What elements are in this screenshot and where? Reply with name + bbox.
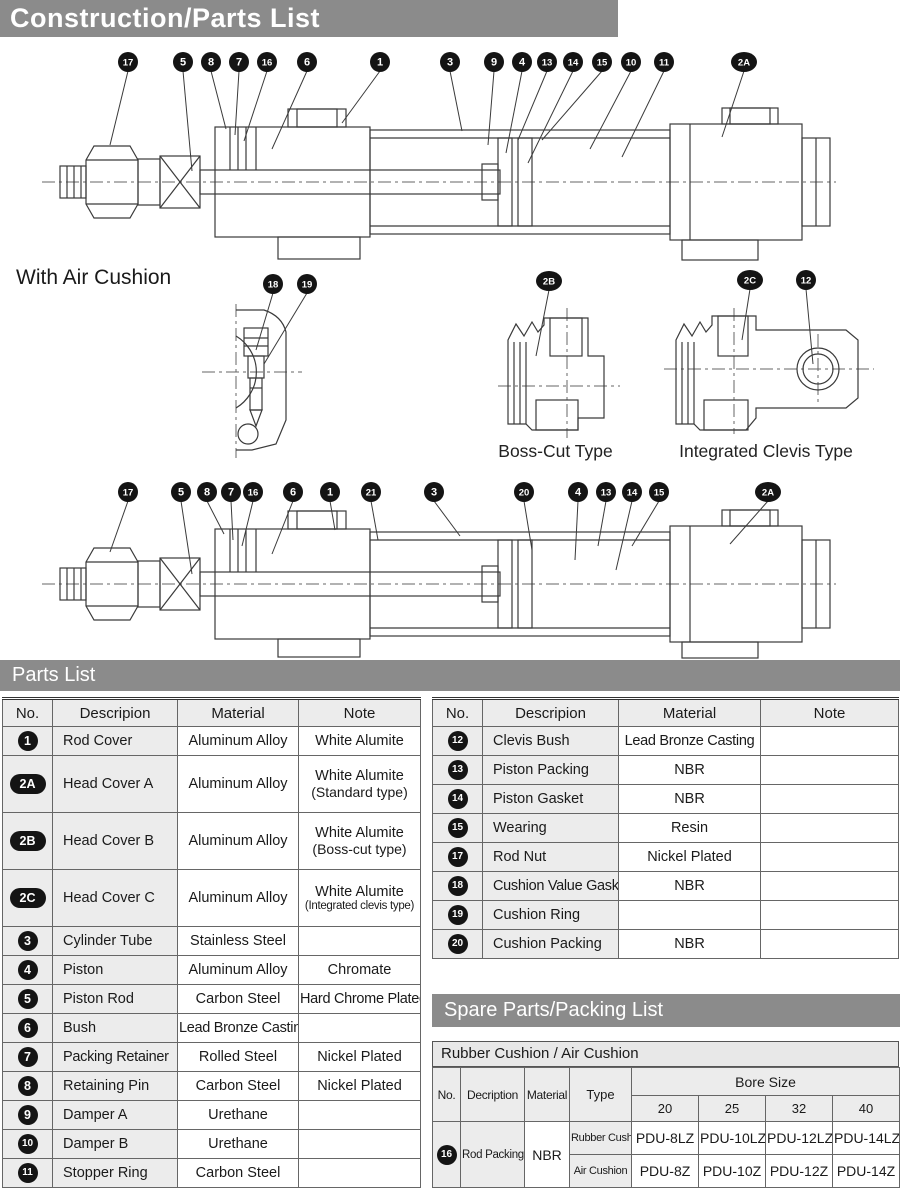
- parts-row: 14Piston GasketNBR: [433, 785, 899, 814]
- note-cell: [761, 727, 899, 756]
- callout-badge-8: 8: [201, 52, 221, 72]
- part-number-badge: 14: [448, 789, 468, 809]
- svg-text:1: 1: [377, 57, 383, 69]
- column-header: Material: [178, 699, 299, 727]
- column-header: Decription: [461, 1068, 525, 1122]
- part-code-cell: PDU-12Z: [766, 1155, 833, 1188]
- callout-badge-3: 3: [424, 482, 444, 502]
- description-cell: Piston: [53, 956, 178, 985]
- material-cell: Nickel Plated: [619, 843, 761, 872]
- callout-badge-15: 15: [592, 52, 612, 72]
- parts-list-table-left: No.DescripionMaterialNote1Rod CoverAlumi…: [2, 697, 421, 1188]
- part-no-cell: 20: [433, 930, 483, 959]
- part-no-cell: 2A: [3, 756, 53, 813]
- callout-badge-2C: 2C: [737, 270, 763, 290]
- description-cell: Piston Packing: [483, 756, 619, 785]
- part-number-badge: 19: [448, 905, 468, 925]
- material-cell: Aluminum Alloy: [178, 727, 299, 756]
- callout-badge-2A: 2A: [731, 52, 757, 72]
- parts-row: 1Rod CoverAluminum AlloyWhite Alumite: [3, 727, 421, 756]
- part-number-badge: 9: [18, 1105, 38, 1125]
- part-number-badge: 12: [448, 731, 468, 751]
- svg-text:12: 12: [801, 276, 812, 287]
- callout-badge-11: 11: [654, 52, 674, 72]
- description-cell: Clevis Bush: [483, 727, 619, 756]
- svg-text:17: 17: [123, 488, 134, 499]
- integrated-clevis-type-diagram: 2C12: [650, 268, 882, 440]
- callout-badge-7: 7: [221, 482, 241, 502]
- description-cell: Cushion Ring: [483, 901, 619, 930]
- part-number-badge: 17: [448, 847, 468, 867]
- svg-text:21: 21: [366, 488, 377, 499]
- svg-text:11: 11: [659, 58, 670, 69]
- parts-row: 10Damper BUrethane: [3, 1130, 421, 1159]
- note-cell: White Alumite(Boss-cut type): [299, 813, 421, 870]
- material-cell: Urethane: [178, 1101, 299, 1130]
- svg-text:20: 20: [519, 488, 530, 499]
- parts-row: 20Cushion PackingNBR: [433, 930, 899, 959]
- description-cell: Cushion Value Gasket: [483, 872, 619, 901]
- note-cell: [299, 1159, 421, 1188]
- part-no-cell: 12: [433, 727, 483, 756]
- part-no-cell: 17: [433, 843, 483, 872]
- parts-row: 2BHead Cover BAluminum AlloyWhite Alumit…: [3, 813, 421, 870]
- parts-row: 9Damper AUrethane: [3, 1101, 421, 1130]
- callout-badge-6: 6: [297, 52, 317, 72]
- parts-row: 19Cushion Ring: [433, 901, 899, 930]
- air-cushion-detail-diagram: 1819: [190, 272, 360, 460]
- with-air-cushion-label: With Air Cushion: [16, 266, 171, 290]
- callout-badge-18: 18: [263, 274, 283, 294]
- spare-parts-table: No. Decription Material Type Bore Size 2…: [432, 1067, 900, 1188]
- note-cell: [761, 872, 899, 901]
- callout-badge-20: 20: [514, 482, 534, 502]
- part-number-badge: 2B: [10, 831, 46, 851]
- parts-row: 17Rod NutNickel Plated: [433, 843, 899, 872]
- description-cell: Packing Retainer: [53, 1043, 178, 1072]
- column-header: Note: [761, 699, 899, 727]
- parts-row: 2CHead Cover CAluminum AlloyWhite Alumit…: [3, 870, 421, 927]
- svg-text:2B: 2B: [543, 277, 555, 288]
- part-no-cell: 10: [3, 1130, 53, 1159]
- svg-text:3: 3: [447, 57, 453, 69]
- svg-text:7: 7: [228, 487, 234, 499]
- callout-badge-16: 16: [243, 482, 263, 502]
- svg-text:17: 17: [123, 58, 134, 69]
- material-cell: Aluminum Alloy: [178, 813, 299, 870]
- description-cell: Head Cover C: [53, 870, 178, 927]
- header-row: No.DescripionMaterialNote: [433, 699, 899, 727]
- svg-text:5: 5: [180, 57, 186, 69]
- part-number-badge: 15: [448, 818, 468, 838]
- callout-badge-10: 10: [621, 52, 641, 72]
- parts-row: 3Cylinder TubeStainless Steel: [3, 927, 421, 956]
- note-cell: [761, 785, 899, 814]
- callout-badge-2B: 2B: [536, 271, 562, 291]
- note-cell: [299, 1014, 421, 1043]
- part-code-cell: PDU-14Z: [833, 1155, 900, 1188]
- boss-cut-type-label: Boss-Cut Type: [468, 441, 643, 462]
- material-cell: Aluminum Alloy: [178, 956, 299, 985]
- svg-text:15: 15: [654, 488, 665, 499]
- description-cell: Cushion Packing: [483, 930, 619, 959]
- svg-text:14: 14: [568, 58, 579, 69]
- part-code-cell: PDU-8Z: [632, 1155, 699, 1188]
- note-cell: [299, 1130, 421, 1159]
- description-cell: Head Cover A: [53, 756, 178, 813]
- part-code-cell: PDU-10LZ: [699, 1122, 766, 1155]
- callout-badge-6: 6: [283, 482, 303, 502]
- material-cell: Lead Bronze Casting: [178, 1014, 299, 1043]
- note-text: White Alumite: [300, 884, 419, 900]
- part-no-cell: 16: [433, 1122, 461, 1188]
- description-cell: Stopper Ring: [53, 1159, 178, 1188]
- part-no-cell: 8: [3, 1072, 53, 1101]
- parts-row: 13Piston PackingNBR: [433, 756, 899, 785]
- note-cell: [761, 814, 899, 843]
- svg-text:18: 18: [268, 280, 279, 291]
- callout-badge-1: 1: [370, 52, 390, 72]
- callout-badge-16: 16: [257, 52, 277, 72]
- callout-badge-19: 19: [297, 274, 317, 294]
- column-header: No.: [433, 699, 483, 727]
- material-cell: Carbon Steel: [178, 985, 299, 1014]
- parts-row: 18Cushion Value GasketNBR: [433, 872, 899, 901]
- callout-badge-17: 17: [118, 52, 138, 72]
- bore-size-value: 25: [699, 1096, 766, 1122]
- svg-text:14: 14: [627, 488, 638, 499]
- svg-text:15: 15: [597, 58, 608, 69]
- callout-badge-3: 3: [440, 52, 460, 72]
- type-cell: Rubber Cushion: [570, 1122, 632, 1155]
- note-text: Nickel Plated: [300, 1049, 419, 1065]
- description-cell: Wearing: [483, 814, 619, 843]
- bore-size-value: 40: [833, 1096, 900, 1122]
- material-cell: Stainless Steel: [178, 927, 299, 956]
- note-cell: White Alumite(Integrated clevis type): [299, 870, 421, 927]
- parts-row: 5Piston RodCarbon SteelHard Chrome Plate…: [3, 985, 421, 1014]
- boss-cut-type-diagram: 2B: [478, 268, 633, 440]
- svg-text:16: 16: [262, 58, 273, 69]
- note-text: Chromate: [300, 962, 419, 978]
- parts-list-banner: Parts List: [0, 660, 900, 691]
- description-cell: Damper A: [53, 1101, 178, 1130]
- part-no-cell: 13: [433, 756, 483, 785]
- parts-row: 2AHead Cover AAluminum AlloyWhite Alumit…: [3, 756, 421, 813]
- part-no-cell: 2B: [3, 813, 53, 870]
- note-subtext: (Integrated clevis type): [300, 900, 419, 912]
- part-no-cell: 18: [433, 872, 483, 901]
- callout-badge-9: 9: [484, 52, 504, 72]
- material-cell: NBR: [619, 872, 761, 901]
- callout-badge-14: 14: [622, 482, 642, 502]
- page-title-banner: Construction/Parts List: [0, 0, 618, 37]
- description-cell: Retaining Pin: [53, 1072, 178, 1101]
- svg-text:16: 16: [248, 488, 259, 499]
- callout-badge-5: 5: [173, 52, 193, 72]
- part-no-cell: 4: [3, 956, 53, 985]
- description-cell: Rod Packing: [461, 1122, 525, 1188]
- note-cell: White Alumite: [299, 727, 421, 756]
- part-number-badge: 6: [18, 1018, 38, 1038]
- spare-parts-banner: Spare Parts/Packing List: [432, 994, 900, 1027]
- spare-parts-title: Spare Parts/Packing List: [444, 999, 663, 1021]
- note-text: White Alumite: [300, 825, 419, 841]
- header-row: No.DescripionMaterialNote: [3, 699, 421, 727]
- column-header: Type: [570, 1068, 632, 1122]
- svg-text:4: 4: [575, 487, 582, 499]
- description-cell: Damper B: [53, 1130, 178, 1159]
- part-number-badge: 5: [18, 989, 38, 1009]
- callout-badge-12: 12: [796, 270, 816, 290]
- description-cell: Piston Gasket: [483, 785, 619, 814]
- column-header: No.: [3, 699, 53, 727]
- description-cell: Cylinder Tube: [53, 927, 178, 956]
- part-number-badge: 2C: [10, 888, 46, 908]
- svg-text:2A: 2A: [762, 488, 774, 499]
- part-code-cell: PDU-8LZ: [632, 1122, 699, 1155]
- part-no-cell: 5: [3, 985, 53, 1014]
- part-code-cell: PDU-10Z: [699, 1155, 766, 1188]
- part-no-cell: 11: [3, 1159, 53, 1188]
- bore-size-value: 20: [632, 1096, 699, 1122]
- part-number-badge: 3: [18, 931, 38, 951]
- description-cell: Piston Rod: [53, 985, 178, 1014]
- part-number-badge: 4: [18, 960, 38, 980]
- part-number-badge: 2A: [10, 774, 46, 794]
- part-number-badge: 13: [448, 760, 468, 780]
- part-number-badge: 16: [437, 1145, 457, 1165]
- integrated-clevis-type-label: Integrated Clevis Type: [642, 441, 890, 462]
- material-cell: Carbon Steel: [178, 1072, 299, 1101]
- column-header: Material: [525, 1068, 570, 1122]
- description-cell: Bush: [53, 1014, 178, 1043]
- svg-text:5: 5: [178, 487, 184, 499]
- svg-text:1: 1: [327, 487, 333, 499]
- callout-badge-4: 4: [512, 52, 532, 72]
- type-cell: Air Cushion: [570, 1155, 632, 1188]
- callout-badge-2A: 2A: [755, 482, 781, 502]
- part-no-cell: 19: [433, 901, 483, 930]
- description-cell: Rod Cover: [53, 727, 178, 756]
- svg-text:13: 13: [601, 488, 612, 499]
- svg-text:2C: 2C: [744, 276, 756, 287]
- callout-badge-7: 7: [229, 52, 249, 72]
- part-number-badge: 18: [448, 876, 468, 896]
- catalog-page: { "page": { "title": "Construction/Parts…: [0, 0, 900, 1188]
- part-number-badge: 8: [18, 1076, 38, 1096]
- svg-text:10: 10: [626, 58, 637, 69]
- cylinder-air-cushion-diagram: 1758716612132041314152A: [30, 478, 890, 660]
- parts-row: 8Retaining PinCarbon SteelNickel Plated: [3, 1072, 421, 1101]
- note-subtext: (Standard type): [300, 784, 419, 800]
- part-no-cell: 15: [433, 814, 483, 843]
- parts-row: 15WearingResin: [433, 814, 899, 843]
- note-cell: Chromate: [299, 956, 421, 985]
- callout-badge-21: 21: [361, 482, 381, 502]
- note-cell: [761, 930, 899, 959]
- part-no-cell: 6: [3, 1014, 53, 1043]
- note-text: White Alumite: [300, 733, 419, 749]
- parts-list-table-right: No.DescripionMaterialNote12Clevis BushLe…: [432, 697, 899, 959]
- callout-badge-14: 14: [563, 52, 583, 72]
- column-header: No.: [433, 1068, 461, 1122]
- note-cell: Nickel Plated: [299, 1072, 421, 1101]
- svg-text:6: 6: [290, 487, 296, 499]
- note-cell: [299, 927, 421, 956]
- callout-badge-8: 8: [197, 482, 217, 502]
- svg-text:8: 8: [208, 57, 214, 69]
- material-cell: Aluminum Alloy: [178, 870, 299, 927]
- parts-row: 6BushLead Bronze Casting: [3, 1014, 421, 1043]
- part-no-cell: 2C: [3, 870, 53, 927]
- column-header: Note: [299, 699, 421, 727]
- svg-text:2A: 2A: [738, 58, 750, 69]
- material-cell: Urethane: [178, 1130, 299, 1159]
- page-title: Construction/Parts List: [10, 3, 320, 33]
- column-header: Descripion: [483, 699, 619, 727]
- material-cell: Resin: [619, 814, 761, 843]
- note-cell: [761, 756, 899, 785]
- callout-badge-5: 5: [171, 482, 191, 502]
- part-code-cell: PDU-12LZ: [766, 1122, 833, 1155]
- note-cell: White Alumite(Standard type): [299, 756, 421, 813]
- part-number-badge: 11: [18, 1163, 38, 1183]
- description-cell: Head Cover B: [53, 813, 178, 870]
- note-cell: [761, 843, 899, 872]
- svg-text:3: 3: [431, 487, 437, 499]
- column-header: Material: [619, 699, 761, 727]
- column-header: Descripion: [53, 699, 178, 727]
- callout-badge-4: 4: [568, 482, 588, 502]
- note-text: Hard Chrome Plated: [300, 991, 419, 1007]
- description-cell: Rod Nut: [483, 843, 619, 872]
- svg-text:6: 6: [304, 57, 310, 69]
- callout-badge-1: 1: [320, 482, 340, 502]
- svg-text:4: 4: [519, 57, 526, 69]
- parts-list-title: Parts List: [12, 664, 95, 686]
- callout-badge-13: 13: [596, 482, 616, 502]
- note-cell: Hard Chrome Plated: [299, 985, 421, 1014]
- callout-badge-17: 17: [118, 482, 138, 502]
- part-code-cell: PDU-14LZ: [833, 1122, 900, 1155]
- callout-badge-13: 13: [537, 52, 557, 72]
- material-cell: [619, 901, 761, 930]
- note-text: Nickel Plated: [300, 1078, 419, 1094]
- svg-text:7: 7: [236, 57, 242, 69]
- material-cell: NBR: [619, 785, 761, 814]
- header-row: No. Decription Material Type Bore Size: [433, 1068, 900, 1096]
- note-text: White Alumite: [300, 768, 419, 784]
- part-no-cell: 7: [3, 1043, 53, 1072]
- callout-badge-15: 15: [649, 482, 669, 502]
- parts-row: 7Packing RetainerRolled SteelNickel Plat…: [3, 1043, 421, 1072]
- part-no-cell: 14: [433, 785, 483, 814]
- material-cell: Rolled Steel: [178, 1043, 299, 1072]
- parts-row: 12Clevis BushLead Bronze Casting: [433, 727, 899, 756]
- part-number-badge: 10: [18, 1134, 38, 1154]
- svg-text:19: 19: [302, 280, 313, 291]
- note-cell: Nickel Plated: [299, 1043, 421, 1072]
- parts-row: 4PistonAluminum AlloyChromate: [3, 956, 421, 985]
- part-no-cell: 1: [3, 727, 53, 756]
- bore-size-header: Bore Size: [632, 1068, 900, 1096]
- note-cell: [299, 1101, 421, 1130]
- part-no-cell: 9: [3, 1101, 53, 1130]
- spare-row: 16 Rod Packing NBR Rubber CushionPDU-8LZ…: [433, 1122, 900, 1155]
- note-subtext: (Boss-cut type): [300, 841, 419, 857]
- part-number-badge: 1: [18, 731, 38, 751]
- material-cell: Lead Bronze Casting: [619, 727, 761, 756]
- part-number-badge: 20: [448, 934, 468, 954]
- material-cell: NBR: [619, 930, 761, 959]
- svg-text:13: 13: [542, 58, 553, 69]
- parts-row: 11Stopper RingCarbon Steel: [3, 1159, 421, 1188]
- svg-text:8: 8: [204, 487, 210, 499]
- material-cell: Carbon Steel: [178, 1159, 299, 1188]
- material-cell: Aluminum Alloy: [178, 756, 299, 813]
- material-cell: NBR: [525, 1122, 570, 1188]
- spare-parts-subtitle: Rubber Cushion / Air Cushion: [432, 1041, 899, 1067]
- bore-size-value: 32: [766, 1096, 833, 1122]
- note-cell: [761, 901, 899, 930]
- material-cell: NBR: [619, 756, 761, 785]
- cylinder-cross-section-diagram: 17587166139413141510112A: [30, 45, 890, 267]
- svg-text:9: 9: [491, 57, 497, 69]
- part-number-badge: 7: [18, 1047, 38, 1067]
- part-no-cell: 3: [3, 927, 53, 956]
